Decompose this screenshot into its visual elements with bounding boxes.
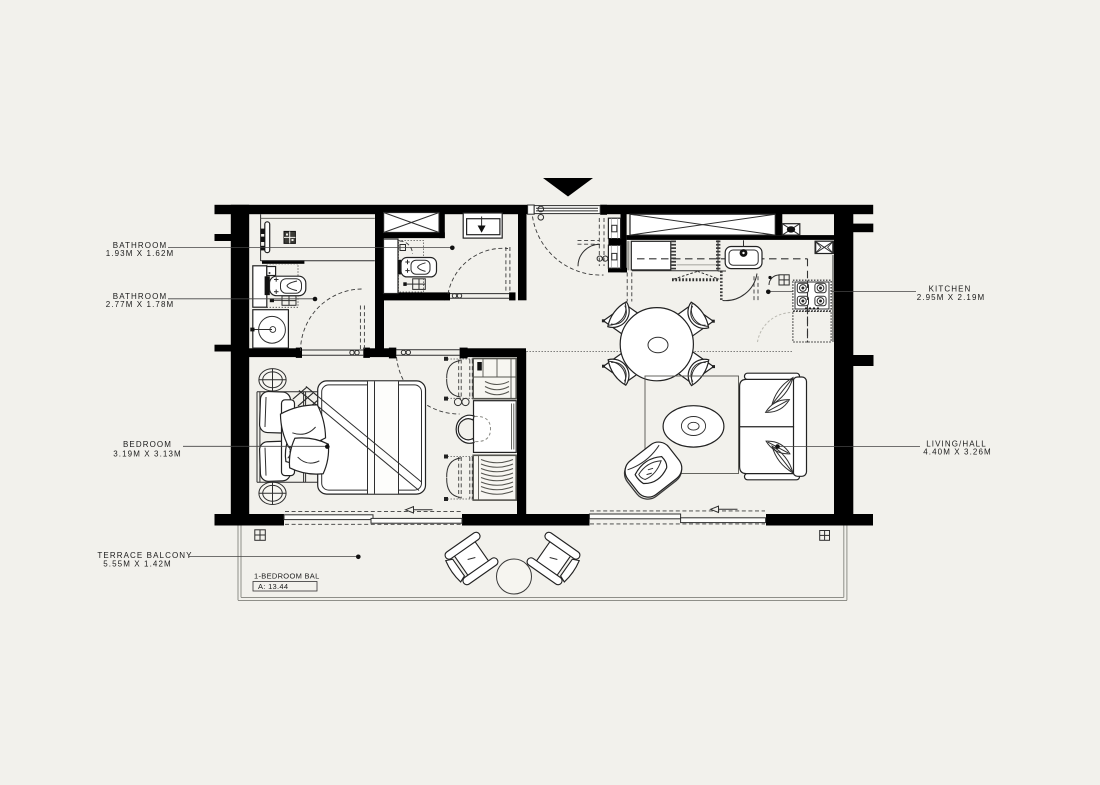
svg-text:4.40M X 3.26M: 4.40M X 3.26M [923,447,992,456]
svg-text:2.95M X 2.19M: 2.95M X 2.19M [917,293,986,302]
svg-text:A: 13.44: A: 13.44 [258,582,288,591]
svg-text:1-BEDROOM BAL: 1-BEDROOM BAL [254,572,320,581]
svg-text:1.93M X 1.62M: 1.93M X 1.62M [106,249,175,258]
svg-text:5.55M X 1.42M: 5.55M X 1.42M [103,560,172,569]
svg-text:2.77M X 1.78M: 2.77M X 1.78M [106,300,175,309]
svg-text:3.19M X 3.13M: 3.19M X 3.13M [113,449,182,458]
svg-text:BEDROOM: BEDROOM [123,440,172,449]
